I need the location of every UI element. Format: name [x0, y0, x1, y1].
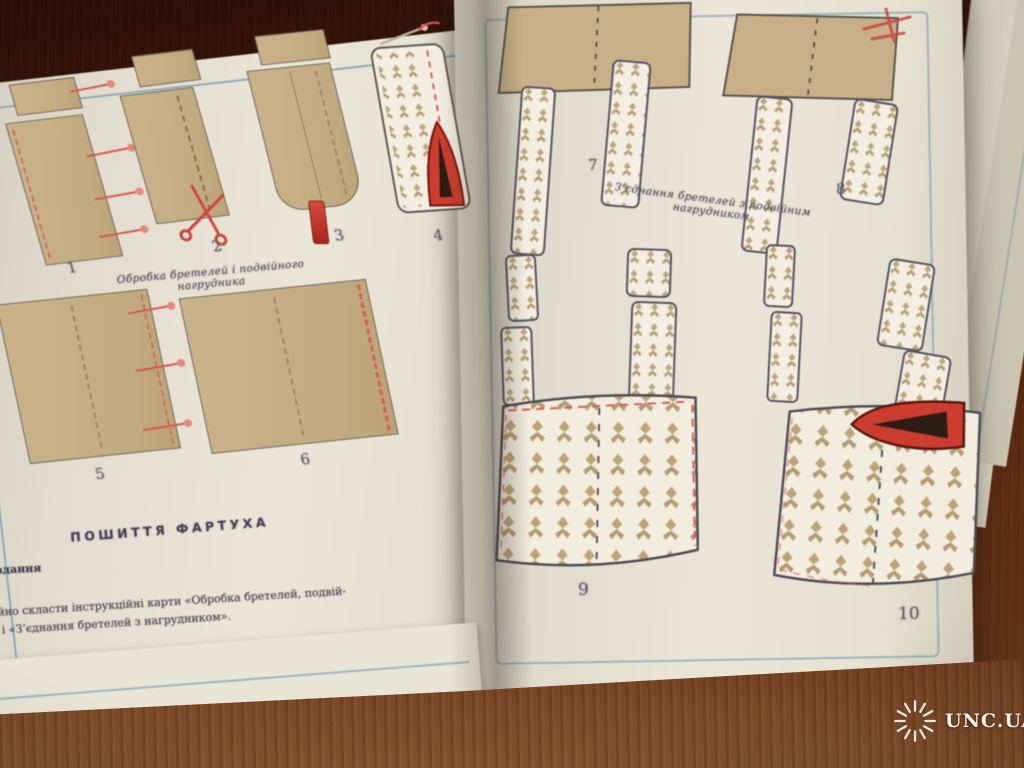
figure-6: 6 — [179, 277, 428, 486]
figure-9-bib — [494, 384, 701, 580]
scissors-icon — [175, 178, 237, 252]
figure-9-strap-piece — [625, 247, 673, 299]
figure-label: 3 — [332, 226, 346, 245]
red-scissors-mark — [860, 6, 914, 48]
fabric-cap-piece — [8, 77, 82, 116]
watermark: UNC.UA — [890, 696, 1024, 746]
open-book: 1 2 — [0, 0, 1024, 768]
fabric-square — [179, 279, 399, 454]
iron-icon — [843, 382, 974, 465]
photo-open-sewing-book: 1 2 — [0, 0, 1024, 768]
figure-label: 5 — [93, 464, 106, 483]
fabric-cap-piece — [131, 49, 201, 88]
figure-label: 7 — [588, 156, 598, 174]
figure-label: 6 — [299, 450, 312, 469]
fabric-square — [0, 289, 181, 464]
sunburst-icon — [890, 696, 940, 746]
fabric-cap-piece — [254, 29, 331, 66]
figure-9-strap-piece — [504, 253, 540, 323]
figure-label: 10 — [898, 604, 920, 624]
figure-label: 8 — [836, 180, 846, 198]
figure-label: 9 — [578, 580, 589, 600]
figure-10-strap-piece — [762, 243, 796, 309]
figure-label: 4 — [432, 226, 445, 244]
watermark-text: UNC.UA — [945, 710, 1024, 732]
iron-icon — [414, 120, 471, 210]
